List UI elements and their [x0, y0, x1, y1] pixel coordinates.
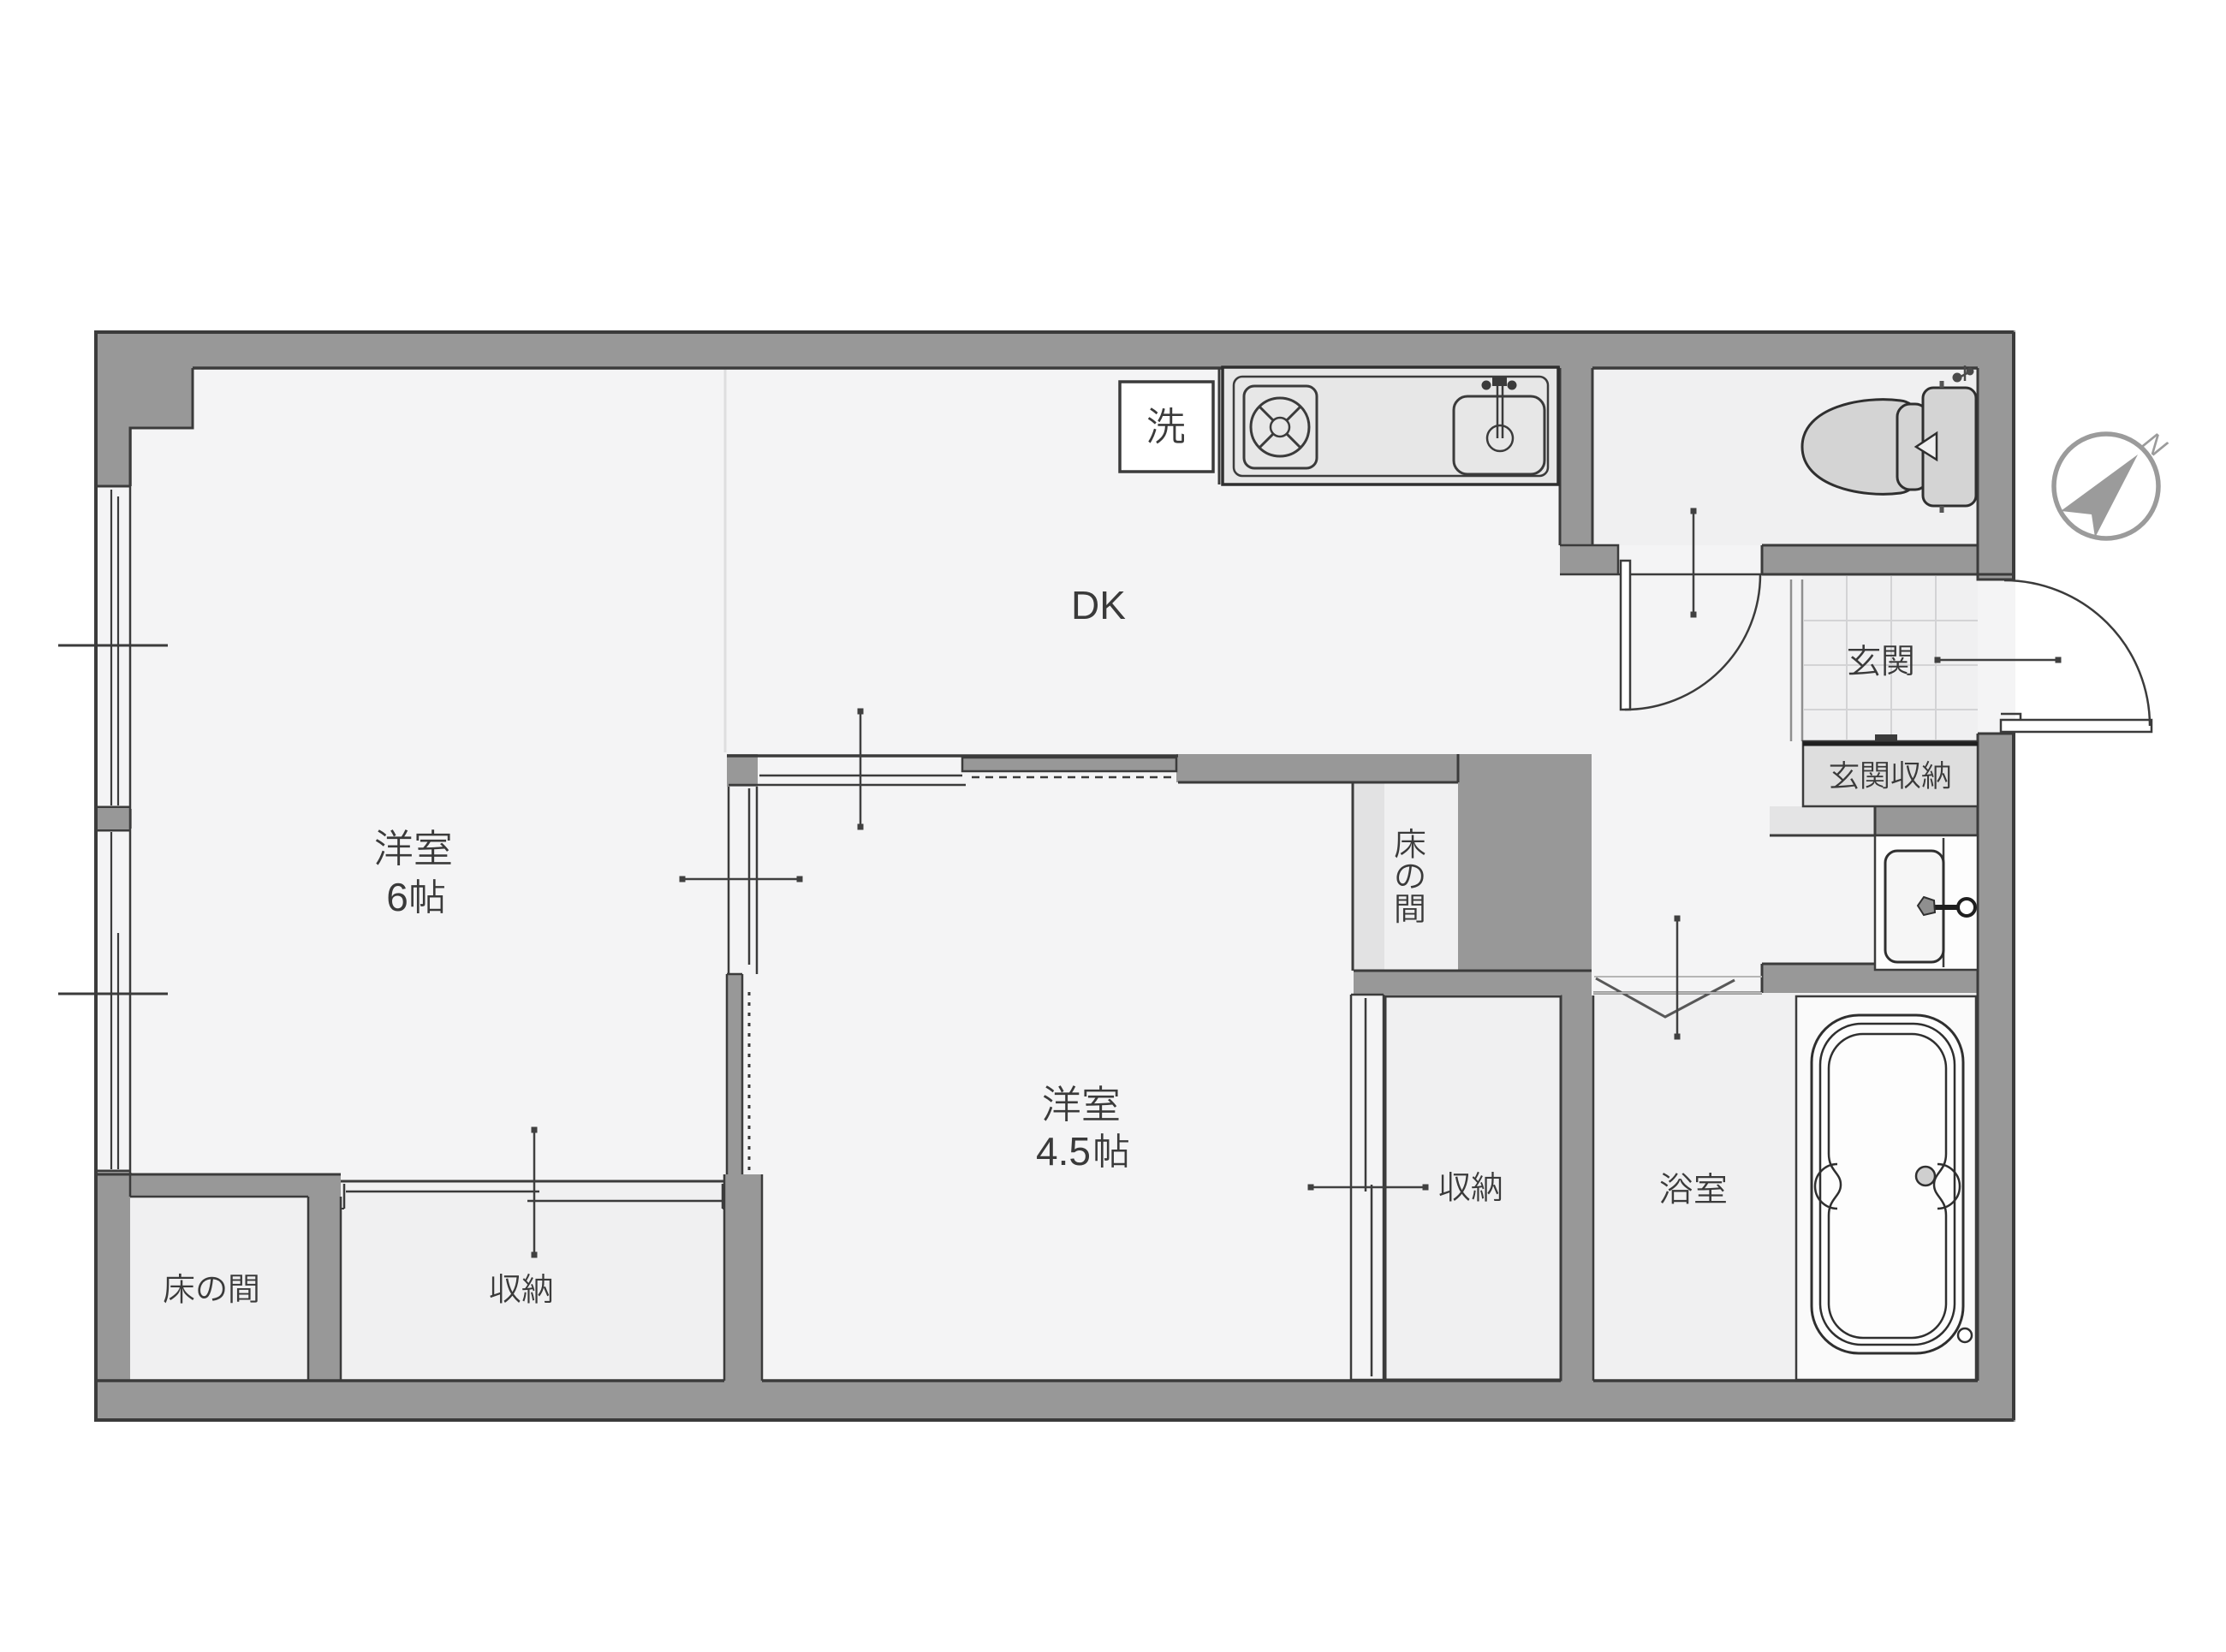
svg-text:DK: DK	[1071, 583, 1126, 627]
svg-text:4.5: 4.5	[1036, 1129, 1091, 1174]
svg-text:6: 6	[386, 875, 408, 919]
